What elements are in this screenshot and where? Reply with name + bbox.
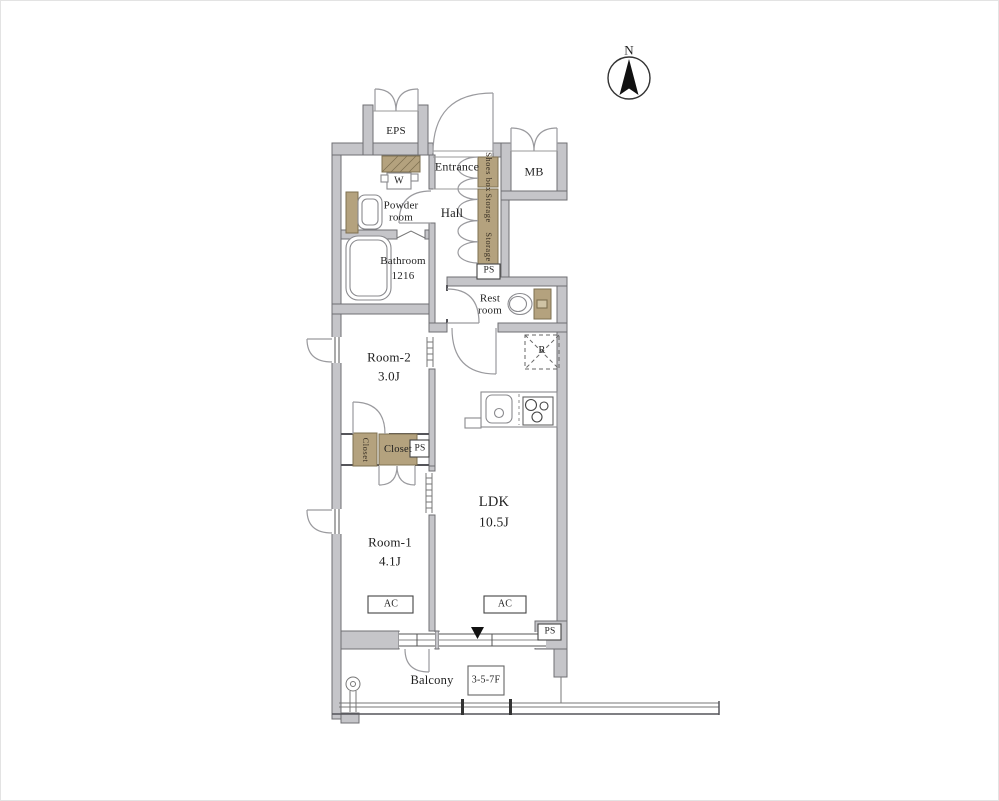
mb-label: MB: [524, 165, 543, 178]
room1-label: Room-1: [368, 536, 412, 551]
vanity-counter: [346, 192, 358, 233]
storage-upper-label: Storage: [483, 193, 493, 222]
ac-ldk-label: AC: [498, 598, 512, 609]
north-arrow-icon: [620, 59, 639, 95]
room2-size-label: 3.0J: [378, 370, 400, 385]
closet-main-doors: [379, 466, 397, 485]
entrance-door: [433, 93, 493, 153]
floor-plan-page: N EPS Entrance Shoes box MB W Powder roo…: [0, 0, 999, 801]
entrance-label: Entrance: [435, 160, 479, 173]
ps-hall-label: PS: [484, 266, 495, 277]
hall-label: Hall: [441, 206, 463, 220]
compass-north-label: N: [624, 44, 634, 59]
powder-room-label: Powder room: [374, 200, 428, 225]
storage-lower-label: Storage: [483, 232, 493, 261]
refrigerator-label: R: [538, 345, 545, 357]
laundry-shelf: [382, 156, 420, 172]
ldk-size-label: 10.5J: [479, 514, 509, 529]
eps-label: EPS: [386, 125, 406, 137]
closet-side-label: Closet: [360, 438, 370, 463]
bathroom-size-label: 1216: [392, 270, 415, 282]
drain-pipe: [346, 677, 360, 691]
shoes-box-label: Shoes box: [483, 152, 493, 192]
rest-room-label: Rest room: [468, 293, 512, 318]
ps-ldk-label: PS: [545, 627, 556, 638]
balcony-label: Balcony: [410, 673, 453, 687]
ldk-label: LDK: [479, 494, 509, 510]
compass: [608, 57, 650, 99]
room2-casement-window: [307, 339, 332, 362]
closet-main-label: Closet: [384, 444, 412, 456]
room2-label: Room-2: [367, 351, 411, 366]
ps-closet-label: PS: [415, 444, 426, 455]
closet-side-door: [353, 402, 385, 434]
bathroom-label: Bathroom: [380, 255, 426, 267]
ldk-door: [452, 328, 496, 374]
balcony-access-door: [405, 649, 429, 672]
ac-room1-label: AC: [384, 598, 398, 609]
room1-casement-window: [307, 510, 332, 533]
room1-size-label: 4.1J: [379, 555, 401, 570]
floor-note-label: 3-5-7F: [472, 674, 500, 685]
washer-label: W: [394, 175, 404, 186]
